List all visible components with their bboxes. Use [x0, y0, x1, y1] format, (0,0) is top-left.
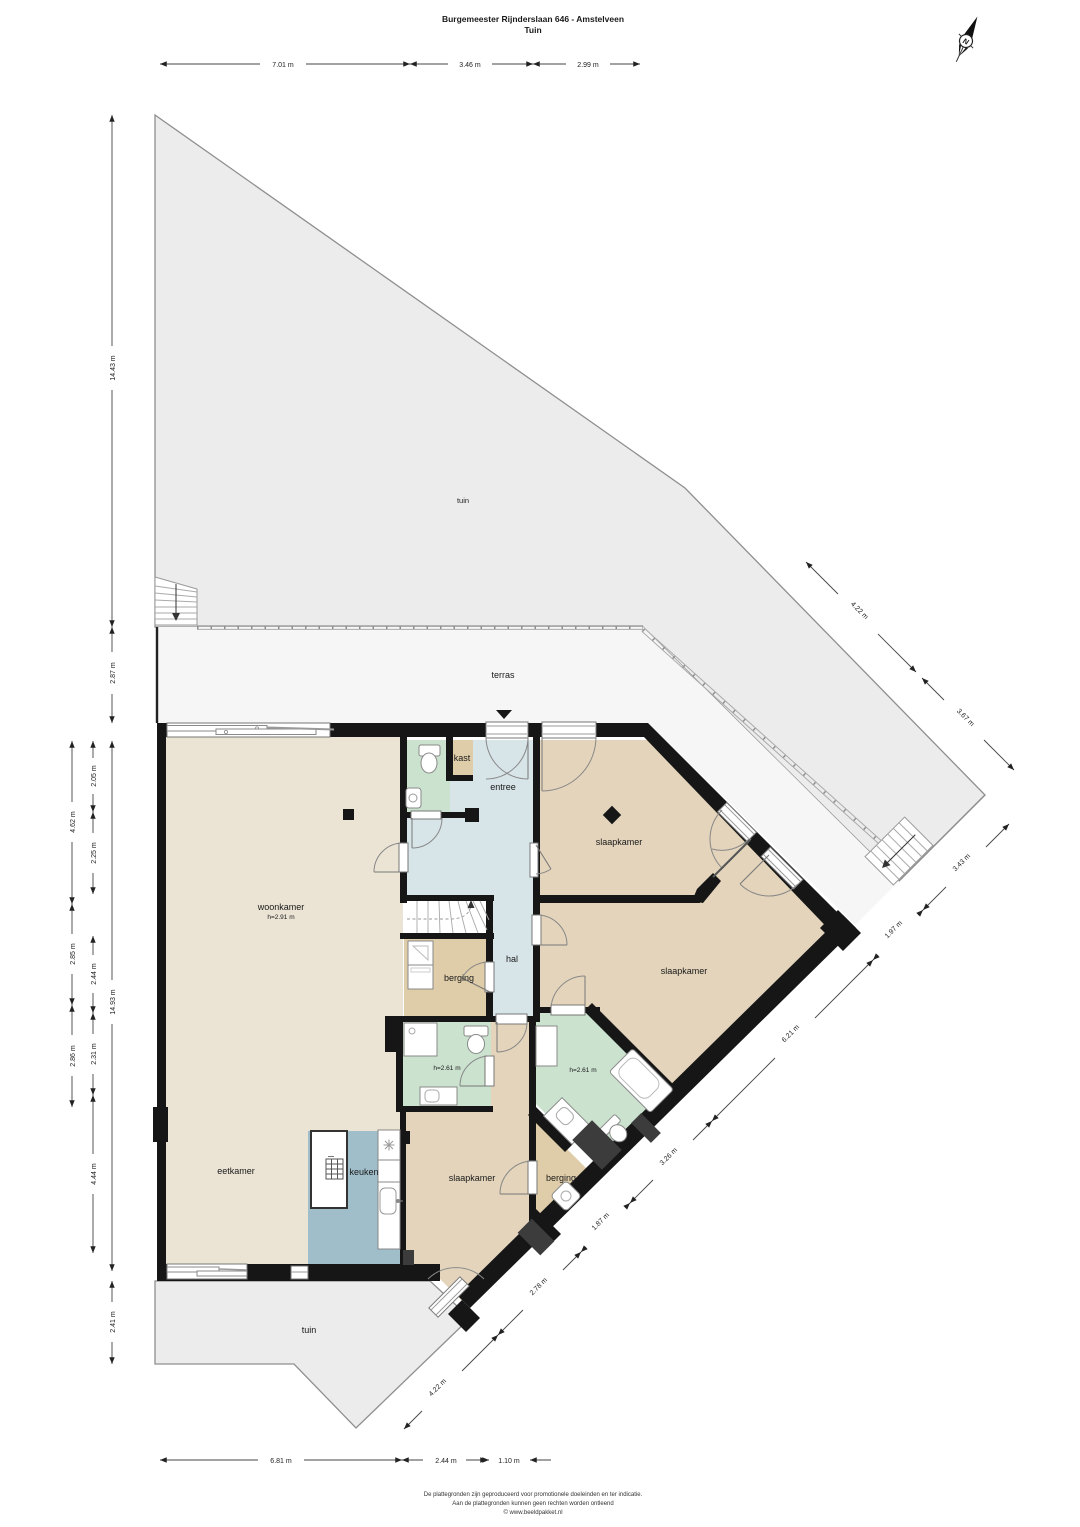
svg-text:7.01 m: 7.01 m [272, 62, 294, 69]
svg-text:tuin: tuin [457, 496, 469, 505]
svg-text:6.81 m: 6.81 m [270, 1458, 292, 1465]
svg-text:slaapkamer: slaapkamer [449, 1173, 496, 1183]
svg-text:Tuin: Tuin [524, 25, 541, 35]
svg-text:kast: kast [454, 753, 471, 763]
svg-text:14.43 m: 14.43 m [110, 355, 117, 380]
svg-text:3.46 m: 3.46 m [459, 62, 481, 69]
svg-text:h=2.91 m: h=2.91 m [267, 914, 294, 921]
svg-text:woonkamer: woonkamer [257, 902, 305, 912]
svg-text:De plattegronden zijn geproduc: De plattegronden zijn geproduceerd voor … [424, 1492, 643, 1498]
svg-text:14.93 m: 14.93 m [110, 989, 117, 1014]
svg-text:h=2.61 m: h=2.61 m [433, 1065, 460, 1072]
svg-text:2.99 m: 2.99 m [577, 62, 599, 69]
svg-text:2.44 m: 2.44 m [91, 963, 98, 985]
svg-text:4.44 m: 4.44 m [91, 1163, 98, 1185]
svg-text:© www.beeldpakket.nl: © www.beeldpakket.nl [503, 1509, 562, 1516]
svg-text:slaapkamer: slaapkamer [596, 837, 643, 847]
svg-text:2.86 m: 2.86 m [70, 1045, 77, 1067]
svg-text:eetkamer: eetkamer [217, 1166, 255, 1176]
svg-text:slaapkamer: slaapkamer [661, 966, 708, 976]
svg-text:2.44 m: 2.44 m [435, 1458, 457, 1465]
svg-text:2.25 m: 2.25 m [91, 842, 98, 864]
svg-text:berging: berging [444, 973, 474, 983]
svg-text:4.62 m: 4.62 m [70, 811, 77, 833]
svg-text:h=2.61 m: h=2.61 m [569, 1067, 596, 1074]
svg-text:1.10 m: 1.10 m [498, 1458, 520, 1465]
svg-text:2.31 m: 2.31 m [91, 1043, 98, 1065]
svg-text:2.41 m: 2.41 m [110, 1311, 117, 1333]
svg-text:2.85 m: 2.85 m [70, 943, 77, 965]
svg-text:terras: terras [491, 670, 515, 680]
svg-text:keuken: keuken [349, 1167, 378, 1177]
svg-text:Burgemeester Rijnderslaan 646: Burgemeester Rijnderslaan 646 - Amstelve… [442, 14, 624, 24]
svg-text:Aan de plattegronden kunnen ge: Aan de plattegronden kunnen geen rechten… [452, 1501, 613, 1507]
svg-text:2.87 m: 2.87 m [110, 662, 117, 684]
svg-text:2.05 m: 2.05 m [91, 765, 98, 787]
svg-text:hal: hal [506, 954, 518, 964]
svg-text:berging: berging [546, 1173, 576, 1183]
svg-text:tuin: tuin [302, 1325, 317, 1335]
svg-text:entree: entree [490, 782, 516, 792]
